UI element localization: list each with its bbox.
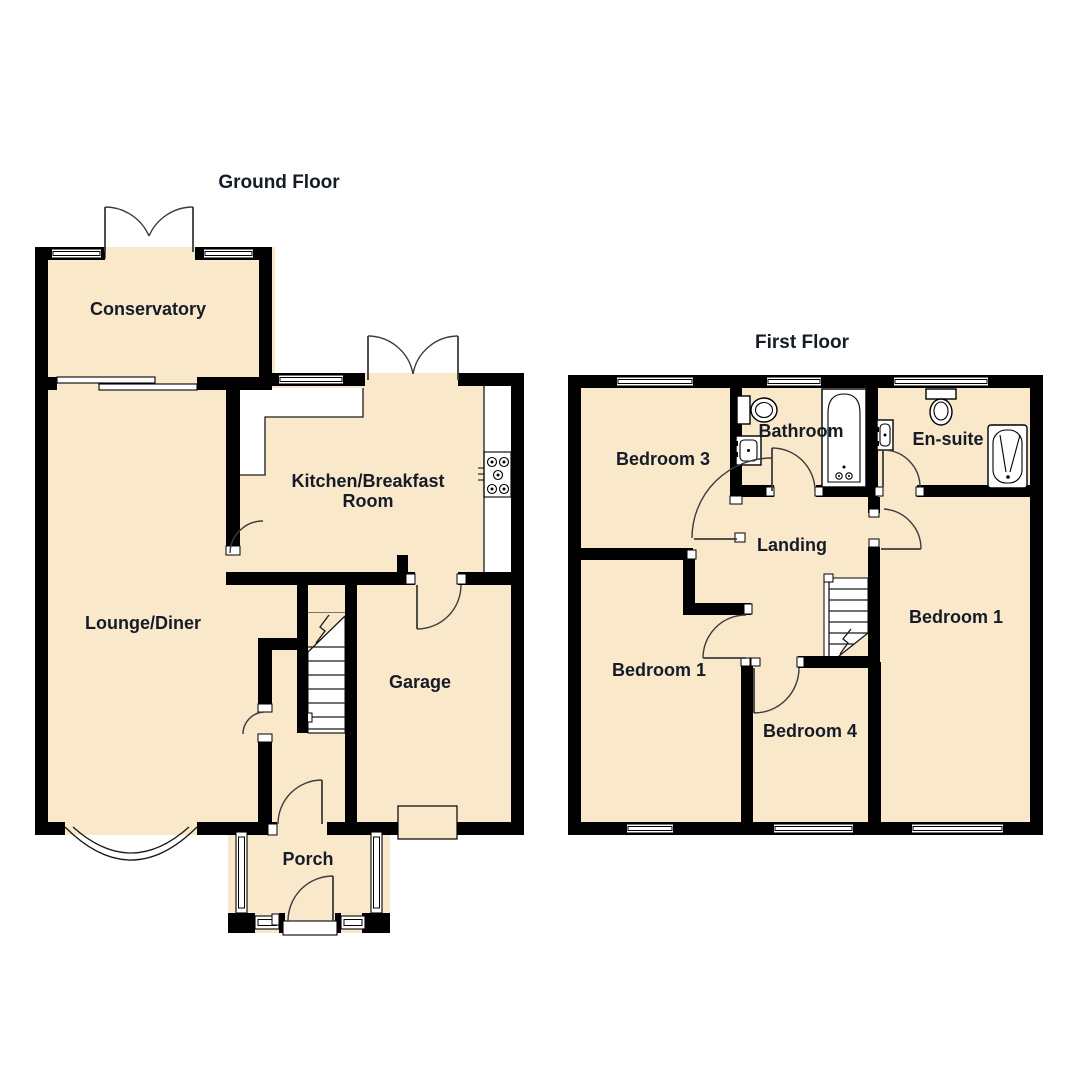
conservatory-window-left — [48, 249, 105, 258]
ensuite-window — [890, 377, 992, 386]
staircase-icon — [303, 613, 345, 733]
staircase-icon — [824, 574, 868, 666]
bedroom1-left-window — [623, 824, 677, 833]
bathroom-window — [763, 377, 825, 386]
conservatory-window-right — [200, 249, 257, 258]
porch-label: Porch — [282, 849, 333, 869]
bedroom1-left-label: Bedroom 1 — [612, 660, 706, 680]
ensuite-label: En-suite — [912, 429, 983, 449]
bedroom4-window — [770, 824, 857, 833]
ground-floor-title: Ground Floor — [218, 172, 340, 193]
garage-label: Garage — [389, 672, 451, 692]
kitchen-label-line1: Kitchen/Breakfast — [291, 471, 444, 491]
porch-door-threshold — [283, 921, 337, 935]
landing-label: Landing — [757, 535, 827, 555]
first-floor-title: First Floor — [755, 332, 850, 353]
kitchen-label-line2: Room — [343, 491, 394, 511]
bathroom-label: Bathroom — [759, 421, 844, 441]
kitchen-side-window — [275, 375, 347, 384]
sink-icon — [874, 420, 893, 450]
porch-window-right — [371, 832, 382, 913]
porch-front-window-right — [341, 916, 365, 929]
lounge-label: Lounge/Diner — [85, 613, 201, 633]
bedroom1-right-label: Bedroom 1 — [909, 607, 1003, 627]
conservatory-label: Conservatory — [90, 299, 206, 319]
garage-door-icon — [398, 806, 457, 839]
bedroom4-label: Bedroom 4 — [763, 721, 857, 741]
toilet-icon — [737, 396, 777, 424]
floor-plan-canvas: Ground Floor Conservatory Kitchen/Breakf… — [0, 0, 1080, 1080]
ground-main-block — [35, 373, 524, 835]
sink-icon — [733, 436, 761, 465]
bedroom1-right-window — [908, 824, 1007, 833]
first-floor-plan: First Floor Bedroom 3 Bathroom En-suite … — [568, 332, 1043, 835]
bedroom3-label: Bedroom 3 — [616, 449, 710, 469]
bedroom3-window — [613, 377, 697, 386]
porch-window-left — [236, 832, 247, 913]
shower-icon — [988, 425, 1027, 488]
